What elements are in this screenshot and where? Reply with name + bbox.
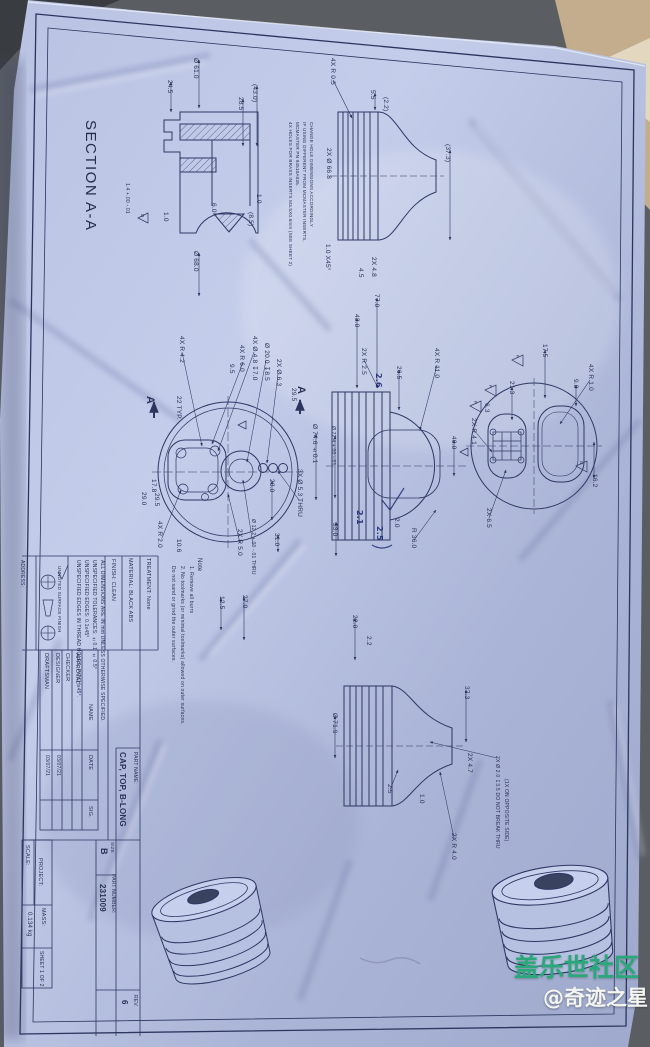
dim-label: 12.5 [218, 596, 225, 609]
dim-label: 6.3 [483, 403, 490, 413]
dim-label: 77.0 [373, 294, 380, 307]
part-name-label: PART NAME: [132, 752, 138, 784]
dim-label: 1.4 +.00 -.01 [124, 183, 130, 214]
general-note: UNSPECIFIED EDGES: 0.1x45° [83, 560, 89, 638]
date-value: 03/07/21 [44, 755, 50, 776]
dim-label: 4X R 1.0 [587, 364, 594, 391]
dim-label: (2.2) [382, 97, 389, 111]
dim-label: 4X R 11.0 [433, 348, 440, 378]
dim-label: 4X R 4.2 [178, 336, 185, 363]
dim-label: 3X Ø 5.3 THRU [296, 469, 303, 517]
dim-label: 2X R 4.1 [470, 418, 477, 445]
dim-label: 9.5 [228, 364, 235, 374]
dim-label: 21.3 [508, 381, 515, 394]
dim-label: 31.0 [273, 533, 280, 546]
mass-value: 0.134 kg [26, 912, 32, 937]
surface-finish-note: UNNOTED SURFACE FINISH [57, 566, 62, 632]
dim-label: 26.5 [395, 366, 402, 379]
dim-label: 17.5 [541, 344, 548, 357]
note-line: 1. Remove all burrs [188, 566, 194, 613]
section-marker-a: A [144, 396, 156, 404]
size-label: SIZE [110, 842, 115, 853]
section-title: SECTION A-A [82, 120, 99, 232]
sheet-label: SHEET 1 OF 2 [38, 951, 44, 987]
dim-label: 2.5 [386, 784, 393, 794]
dim-label: 4X Ø 4.8 ↧7.0 [250, 336, 258, 381]
dim-label: 2X 4.8 [370, 257, 377, 277]
notes-title: Note [196, 558, 202, 571]
dim-label: 9.0 [572, 379, 579, 389]
dim-label: (8.5) [247, 212, 254, 226]
general-note: UNSPECIFIED TOLERANCES: ±0.1 ±0.5° [91, 560, 97, 669]
watermark-community: 盖乐世社区 [514, 948, 639, 984]
watermark-username: @奇迹之星 [543, 982, 648, 1012]
dim-label: 40.0 [450, 436, 457, 449]
datum-flag: D [140, 214, 145, 218]
tolerance-flag: F [488, 385, 493, 388]
insert-note-line: 4X HOLES FOR BRASS INSERTS M3.5X0.6mm (S… [288, 122, 293, 266]
size-value: B [99, 848, 109, 855]
part-number-label: PART NUMBER: [110, 874, 116, 914]
dim-label: 2X Ø 66.8 [325, 148, 332, 179]
section-marker-a: A [295, 386, 307, 394]
name-header: NAME [87, 704, 93, 721]
dim-label: 2.0 [393, 518, 400, 528]
material-row: MATERIAL: BLACK ABS [127, 558, 133, 622]
dim-label: 16.2 [591, 474, 598, 487]
handwritten-dim: 2.6 [374, 373, 383, 388]
dim-label: Ø 72.4 +.00 -.01 [330, 426, 336, 465]
insert-note-line: IF USING DIFFERENT FROM MCMASTER INSERTS… [302, 122, 307, 242]
dim-label: (37.3) [444, 144, 451, 162]
dim-label: 4X R 6.0 [238, 345, 245, 372]
project-label: PROJECT: [37, 858, 43, 886]
dim-label: 2X R 2.5 [360, 348, 367, 375]
note-line: Do not sand or grind the outer surfaces. [170, 566, 176, 662]
dim-label: (43.0) [251, 84, 258, 102]
dim-label: 10.6 [175, 539, 182, 552]
dim-label: 1.0 [418, 794, 425, 804]
tolerance-flag: F [515, 355, 520, 358]
address-label: ADDRESS: [19, 560, 25, 587]
dim-label: 29.5 [153, 493, 160, 506]
dim-label: 5.5 [369, 90, 376, 100]
treatment-row: TREATMENT: None [145, 558, 151, 610]
dim-note: (1X ON OPPOSITE SIDE) [503, 779, 509, 842]
date-value: 03/07/21 [55, 755, 61, 776]
dim-label: Ø 61.0 [192, 58, 199, 79]
dim-label: 27.0 [241, 595, 248, 608]
handwritten-dim: 2.1 [355, 510, 364, 525]
dim-label: 37.3 [463, 686, 470, 699]
scale-label: SCALE: [24, 845, 30, 866]
date-header: DATE [87, 755, 93, 770]
dim-label: 2X 4.7 [466, 753, 473, 773]
dim-label: 4X R 2.0 [156, 521, 163, 548]
role-draftsman: DRAFTSMAN [43, 653, 49, 689]
photo-of-blueprint: SECTION A-A Ø 61.0 24.5 (43.0) 28.5 1.0 … [0, 0, 650, 1047]
finish-row: FINISH: CLEAN [110, 559, 116, 601]
dim-label: 23.0 [268, 479, 275, 492]
general-note: ALL DIMENSIONS ARE IN mm UNLESS OTHERWIS… [99, 560, 105, 722]
dim-label: 4X R 0.5 [329, 58, 336, 85]
rev-value: 6 [120, 1000, 129, 1005]
handwritten-dim: 2.5 [375, 526, 384, 541]
dim-label: 1.0 [255, 194, 262, 204]
dim-label: 17.8 [150, 479, 157, 492]
dim-label: 33.0 [331, 523, 338, 536]
role-checker: CHECKER [64, 653, 70, 681]
insert-note-line: CHANGE HOLE DIMENSIONS ACCORDINGLY [309, 122, 314, 227]
dim-label: 2X Ø 6.3 [275, 359, 282, 386]
dim-label: 2X R 4.0 [450, 833, 457, 860]
tolerance-flag: F [473, 401, 478, 404]
dim-label: Ø 68.0 [192, 251, 199, 272]
sig-header: SIG. [87, 806, 93, 818]
dim-label: Ø 20.0 ↧8.5 [262, 343, 270, 381]
dim-label: Ø 71.9 [331, 713, 338, 734]
rev-label: REV. [132, 995, 138, 1007]
tolerance-flag: G [579, 461, 584, 465]
dim-label: 2X 6.5 [485, 508, 492, 528]
dim-label: 6.0 [210, 203, 217, 213]
dim-label: 1.0 X45° [324, 244, 331, 271]
dim-label: 29.0 [140, 492, 147, 505]
role-approval: APPROVAL [74, 653, 80, 684]
mass-label: MASS: [40, 908, 46, 926]
dim-label: 43.0 [353, 314, 360, 327]
part-number-value: 231009 [98, 884, 107, 912]
dim-label: 22 TYP. [175, 396, 182, 420]
dim-label: 2X R 5.0 [236, 529, 243, 556]
dim-label: 28.5 [237, 97, 244, 110]
insert-note-line: MCMASTER PN 94510A035. [295, 122, 300, 186]
part-name-value: CAP, TOP, B-LONG [118, 752, 127, 827]
dim-note: 2X Ø 2.0 ↧3.5 DO NOT BREAK THRU [494, 756, 500, 849]
dim-label: Ø 74.6 ±0.1 [311, 424, 318, 464]
dim-label: 24.5 [166, 80, 173, 93]
note-line: 2. No toolmarks (or minimal toolmarks) a… [179, 566, 185, 725]
dim-label: 1.0 [162, 212, 169, 222]
dim-label: Ø 12.2 +.00 -.01 THRU [250, 519, 256, 575]
dim-label: 4.5 [357, 268, 364, 278]
dim-label: 22.0 [351, 615, 358, 628]
dim-label: 2.2 [365, 636, 372, 646]
dim-label: R 36.0 [410, 528, 417, 548]
role-designer: DESIGNER [54, 653, 60, 683]
